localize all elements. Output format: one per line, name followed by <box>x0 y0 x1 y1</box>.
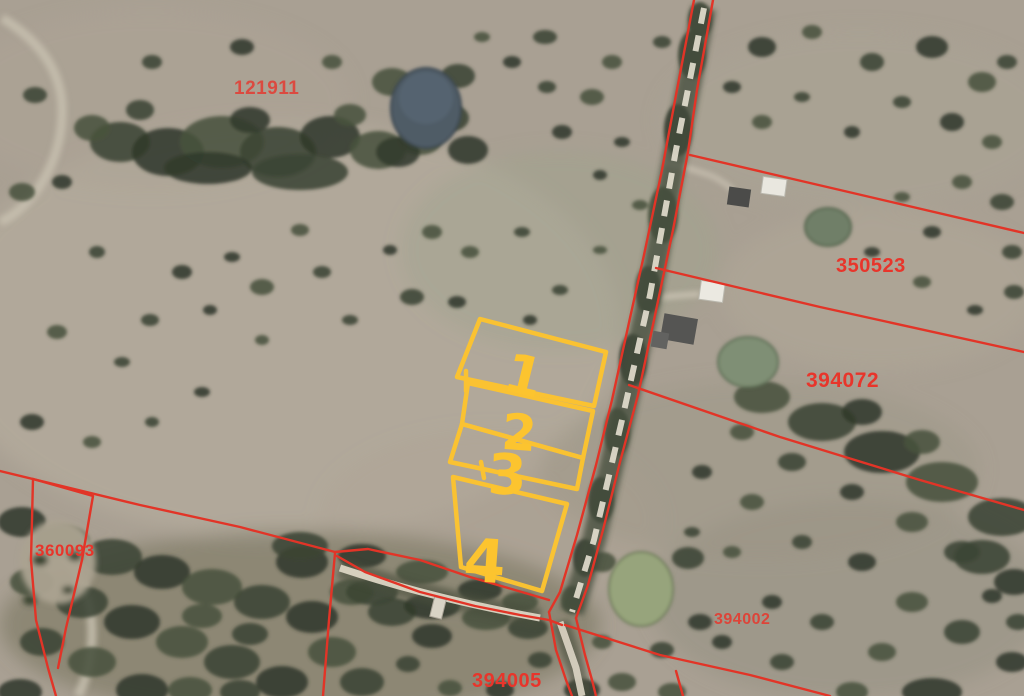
tree-blob <box>894 192 910 202</box>
tree-blob <box>182 604 222 628</box>
tree-blob <box>255 335 269 345</box>
tree-blob <box>342 315 358 325</box>
tree-blob <box>523 315 537 325</box>
lot-number-3: 3 <box>487 442 528 508</box>
tree-blob <box>9 183 35 201</box>
tree-blob <box>20 414 44 430</box>
tree-blob <box>1002 245 1022 259</box>
tree-blob <box>860 53 884 71</box>
tree-blob <box>448 296 466 308</box>
tree-blob <box>230 39 254 55</box>
tree-blob <box>141 314 159 326</box>
tree-blob <box>74 115 110 141</box>
tree-blob <box>792 535 812 549</box>
house-394072-wing <box>651 331 670 350</box>
parcel-label-394002: 394002 <box>714 611 770 628</box>
tree-blob <box>538 81 556 93</box>
tree-blob <box>712 635 732 649</box>
tree-blob <box>114 357 130 367</box>
tree-blob <box>580 89 604 105</box>
tree-blob <box>762 595 782 609</box>
tree-blob <box>896 512 928 532</box>
pond-southeast <box>609 552 673 626</box>
tree-blob <box>893 96 911 108</box>
house-350523 <box>727 187 751 208</box>
tree-blob <box>896 592 928 612</box>
tree-blob <box>602 55 622 69</box>
tree-blob <box>272 532 328 560</box>
map-canvas: 1 2 3 4 121911 350523 394072 360093 3940… <box>0 0 1024 696</box>
tree-blob <box>172 265 192 279</box>
tree-blob <box>438 680 462 696</box>
tree-blob <box>653 36 671 48</box>
tree-blob <box>593 170 607 180</box>
tree-blob <box>952 175 972 189</box>
tree-blob <box>723 546 741 558</box>
lot-4-tick <box>481 462 484 478</box>
tree-blob <box>503 56 521 68</box>
tree-blob <box>134 555 190 589</box>
tree-blob <box>552 125 572 139</box>
tree-blob <box>83 436 101 448</box>
tree-blob <box>944 541 980 563</box>
tree-blob <box>182 569 242 605</box>
tree-blob <box>104 605 160 639</box>
tree-blob <box>692 465 712 479</box>
tree-blob <box>913 276 931 288</box>
tree-blob <box>23 87 47 103</box>
tree-blob <box>89 246 105 258</box>
pond-350523 <box>805 208 851 246</box>
tree-blob <box>308 637 356 667</box>
tree-blob <box>684 527 700 537</box>
tree-blob <box>204 645 260 679</box>
tree-blob <box>868 643 896 661</box>
tree-blob <box>224 252 240 262</box>
tree-blob <box>997 55 1017 69</box>
tree-blob <box>194 387 210 397</box>
tree-blob <box>47 325 67 339</box>
tree-blob <box>593 246 607 254</box>
tree-blob <box>990 194 1014 210</box>
tree-blob <box>748 37 776 57</box>
tree-blob <box>322 55 342 69</box>
parcel-label-350523: 350523 <box>836 255 906 277</box>
tree-blob <box>412 624 452 648</box>
tree-blob <box>203 305 217 315</box>
tree-blob <box>844 126 860 138</box>
tree-blob <box>52 175 72 189</box>
tree-blob <box>723 81 741 93</box>
tree-blob <box>848 553 876 571</box>
tree-blob <box>967 305 983 315</box>
tree-blob <box>291 224 309 236</box>
tree-blob <box>982 589 1002 603</box>
tree-blob <box>514 227 530 237</box>
tree-blob <box>740 494 764 510</box>
tree-blob <box>904 430 940 454</box>
tree-blob <box>923 226 941 238</box>
tree-blob <box>474 32 490 42</box>
tree-blob <box>230 107 270 133</box>
tree-blob <box>906 462 978 502</box>
tree-blob <box>794 92 810 102</box>
pond-top-left-highlight <box>399 72 453 124</box>
tree-blob <box>688 614 712 630</box>
aerial-parcel-map: 1 2 3 4 121911 350523 394072 360093 3940… <box>0 0 1024 696</box>
parcel-label-360093: 360093 <box>35 541 95 560</box>
tree-blob <box>608 673 636 691</box>
tree-blob <box>156 626 208 658</box>
parcel-label-121911: 121911 <box>234 78 299 99</box>
shed-350523 <box>761 176 787 196</box>
tree-blob <box>396 656 420 672</box>
tree-blob <box>252 154 348 190</box>
tree-blob <box>770 654 794 670</box>
tree-blob <box>68 647 116 677</box>
tree-blob <box>810 614 834 630</box>
tree-blob <box>614 137 630 147</box>
tree-blob <box>234 585 290 619</box>
tree-blob <box>250 279 274 295</box>
tree-blob <box>916 36 948 58</box>
tree-blob <box>334 104 366 126</box>
tree-blob <box>528 652 552 668</box>
tree-blob <box>383 245 397 255</box>
tree-blob <box>340 668 384 696</box>
parcel-label-394072: 394072 <box>806 369 879 392</box>
tree-blob <box>400 289 424 305</box>
tree-blob <box>944 620 980 644</box>
tree-blob <box>982 135 1002 149</box>
tree-blob <box>968 72 996 92</box>
tree-blob <box>448 136 488 164</box>
tree-blob <box>126 100 154 120</box>
tree-blob <box>461 246 479 258</box>
pond-394072 <box>718 337 778 387</box>
tree-blob <box>840 484 864 500</box>
tree-blob <box>422 225 442 239</box>
tree-blob <box>164 152 252 184</box>
tree-blob <box>842 399 882 425</box>
tree-blob <box>552 285 568 295</box>
tree-blob <box>533 30 557 44</box>
tree-blob <box>232 623 268 645</box>
tree-blob <box>752 115 772 129</box>
tree-blob <box>313 266 331 278</box>
tree-blob <box>1004 285 1024 299</box>
tree-blob <box>802 25 822 39</box>
tree-blob <box>145 417 159 427</box>
tree-blob <box>672 547 704 569</box>
tree-blob <box>142 55 162 69</box>
lot-number-4: 4 <box>461 526 508 599</box>
tree-blob <box>778 453 806 471</box>
tree-blob <box>940 113 964 131</box>
tree-blob <box>632 200 648 210</box>
parcel-label-394005: 394005 <box>472 670 542 692</box>
